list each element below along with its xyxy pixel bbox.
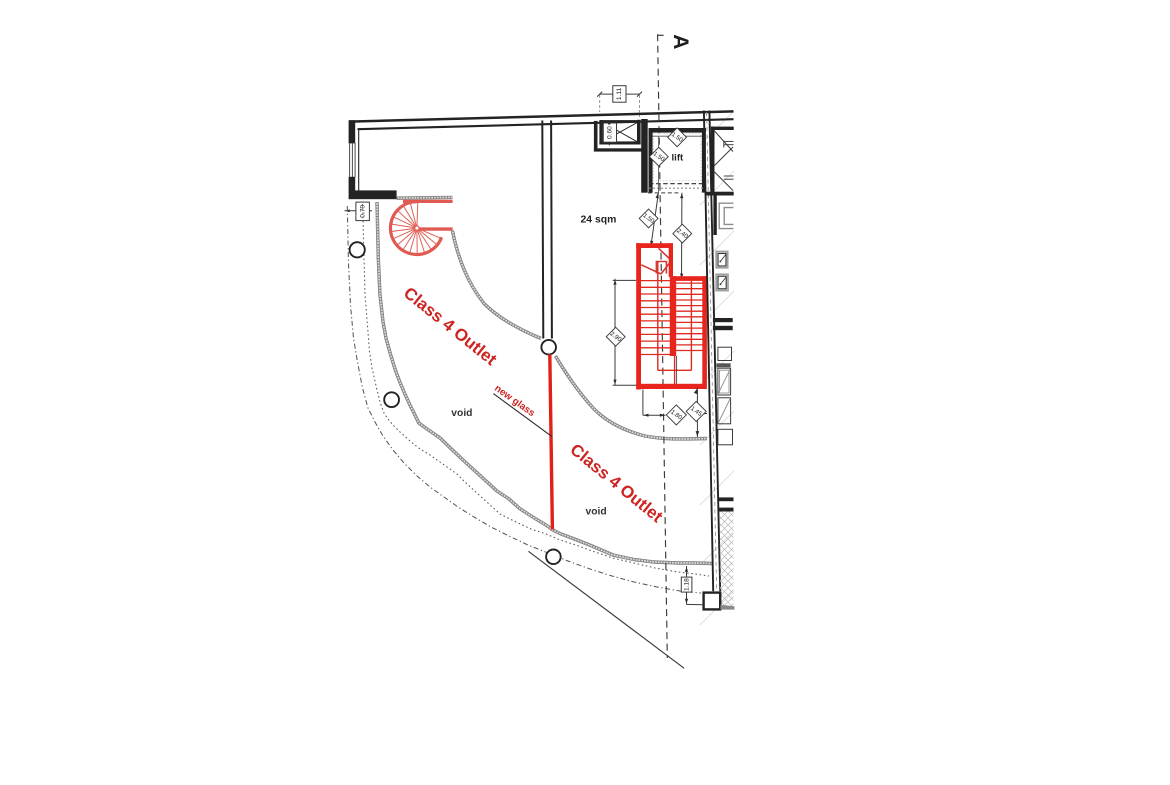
svg-text:void: void	[451, 408, 472, 419]
svg-text:1.11: 1.11	[616, 87, 623, 100]
svg-text:lift: lift	[672, 152, 685, 163]
svg-text:void: void	[586, 506, 607, 517]
svg-text:0.79: 0.79	[359, 205, 366, 218]
svg-text:A: A	[669, 34, 692, 49]
svg-text:0.60: 0.60	[607, 126, 614, 139]
svg-text:1.18: 1.18	[683, 578, 690, 591]
svg-text:24 sqm: 24 sqm	[581, 215, 617, 226]
